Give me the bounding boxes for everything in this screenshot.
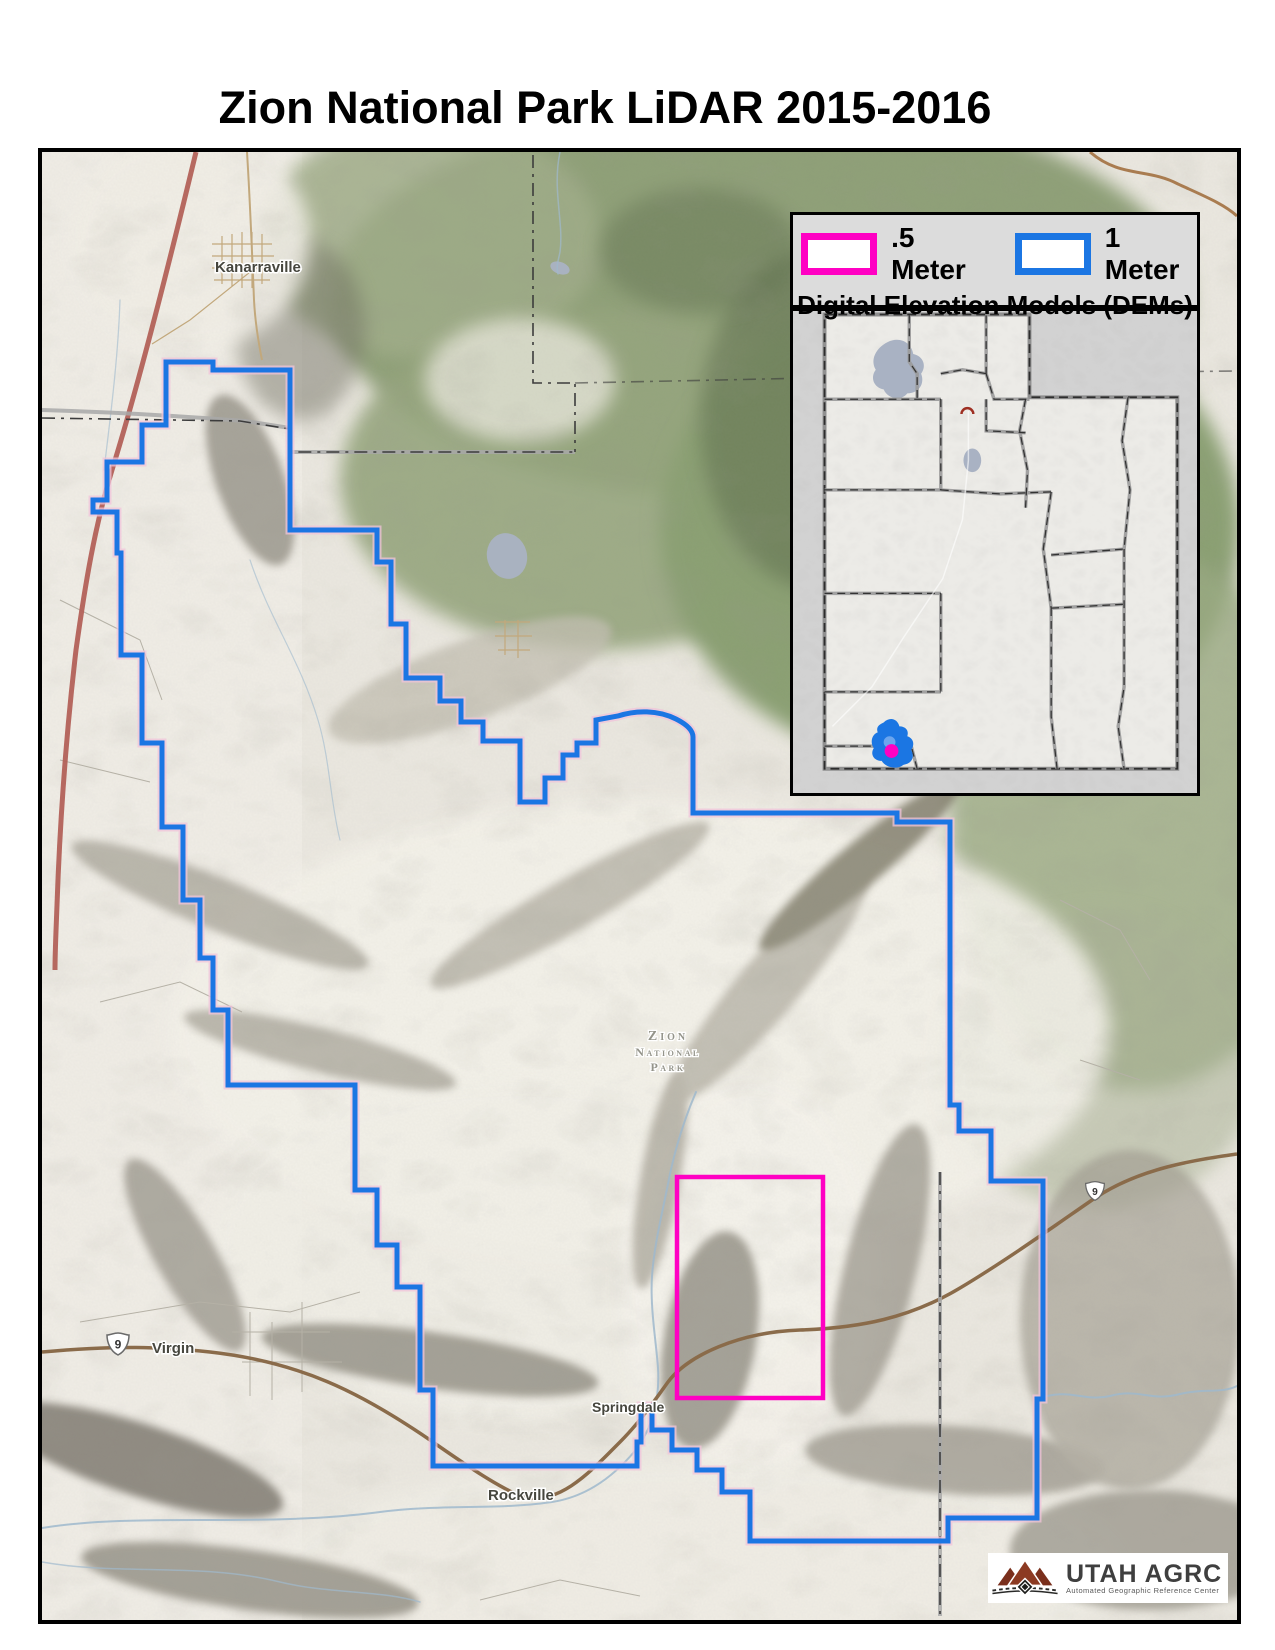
inset-texture (793, 313, 1197, 792)
label-park-line3: Park (650, 1060, 685, 1074)
one-meter-label: 1 Meter (1105, 222, 1197, 286)
map-document: Zion National Park LiDAR 2015-2016 (0, 0, 1275, 1650)
label-park-line1: Zion (648, 1029, 688, 1044)
half-meter-label: .5 Meter (891, 222, 991, 286)
one-meter-swatch (1015, 233, 1091, 275)
label-rockville: Rockville (488, 1487, 554, 1504)
half-meter-swatch (801, 233, 877, 275)
label-park-line2: National (635, 1045, 700, 1059)
inset-half-meter-marker (885, 744, 899, 758)
utah-agrc-logo: UTAH AGRC Automated Geographic Reference… (988, 1553, 1228, 1603)
logo-name: UTAH AGRC (1066, 1562, 1222, 1586)
legend-subtitle: Digital Elevation Models (DEMs) (793, 290, 1197, 321)
logo-tagline: Automated Geographic Reference Center (1066, 1586, 1222, 1595)
page-title: Zion National Park LiDAR 2015-2016 (0, 82, 1210, 134)
legend: .5 Meter 1 Meter Digital Elevation Model… (790, 212, 1200, 308)
label-virgin: Virgin (152, 1340, 194, 1357)
label-kanarraville: Kanarraville (215, 259, 301, 276)
utah-inset-map (790, 308, 1200, 796)
label-springdale: Springdale (592, 1399, 665, 1415)
map-frame: Kanarraville Virgin Springdale Rockville… (38, 148, 1241, 1624)
route-9-shield-east-number: 9 (1092, 1187, 1098, 1198)
agrc-mountains-icon (988, 1555, 1062, 1601)
route-9-shield-west-number: 9 (115, 1338, 122, 1352)
utah-lake (963, 449, 981, 473)
